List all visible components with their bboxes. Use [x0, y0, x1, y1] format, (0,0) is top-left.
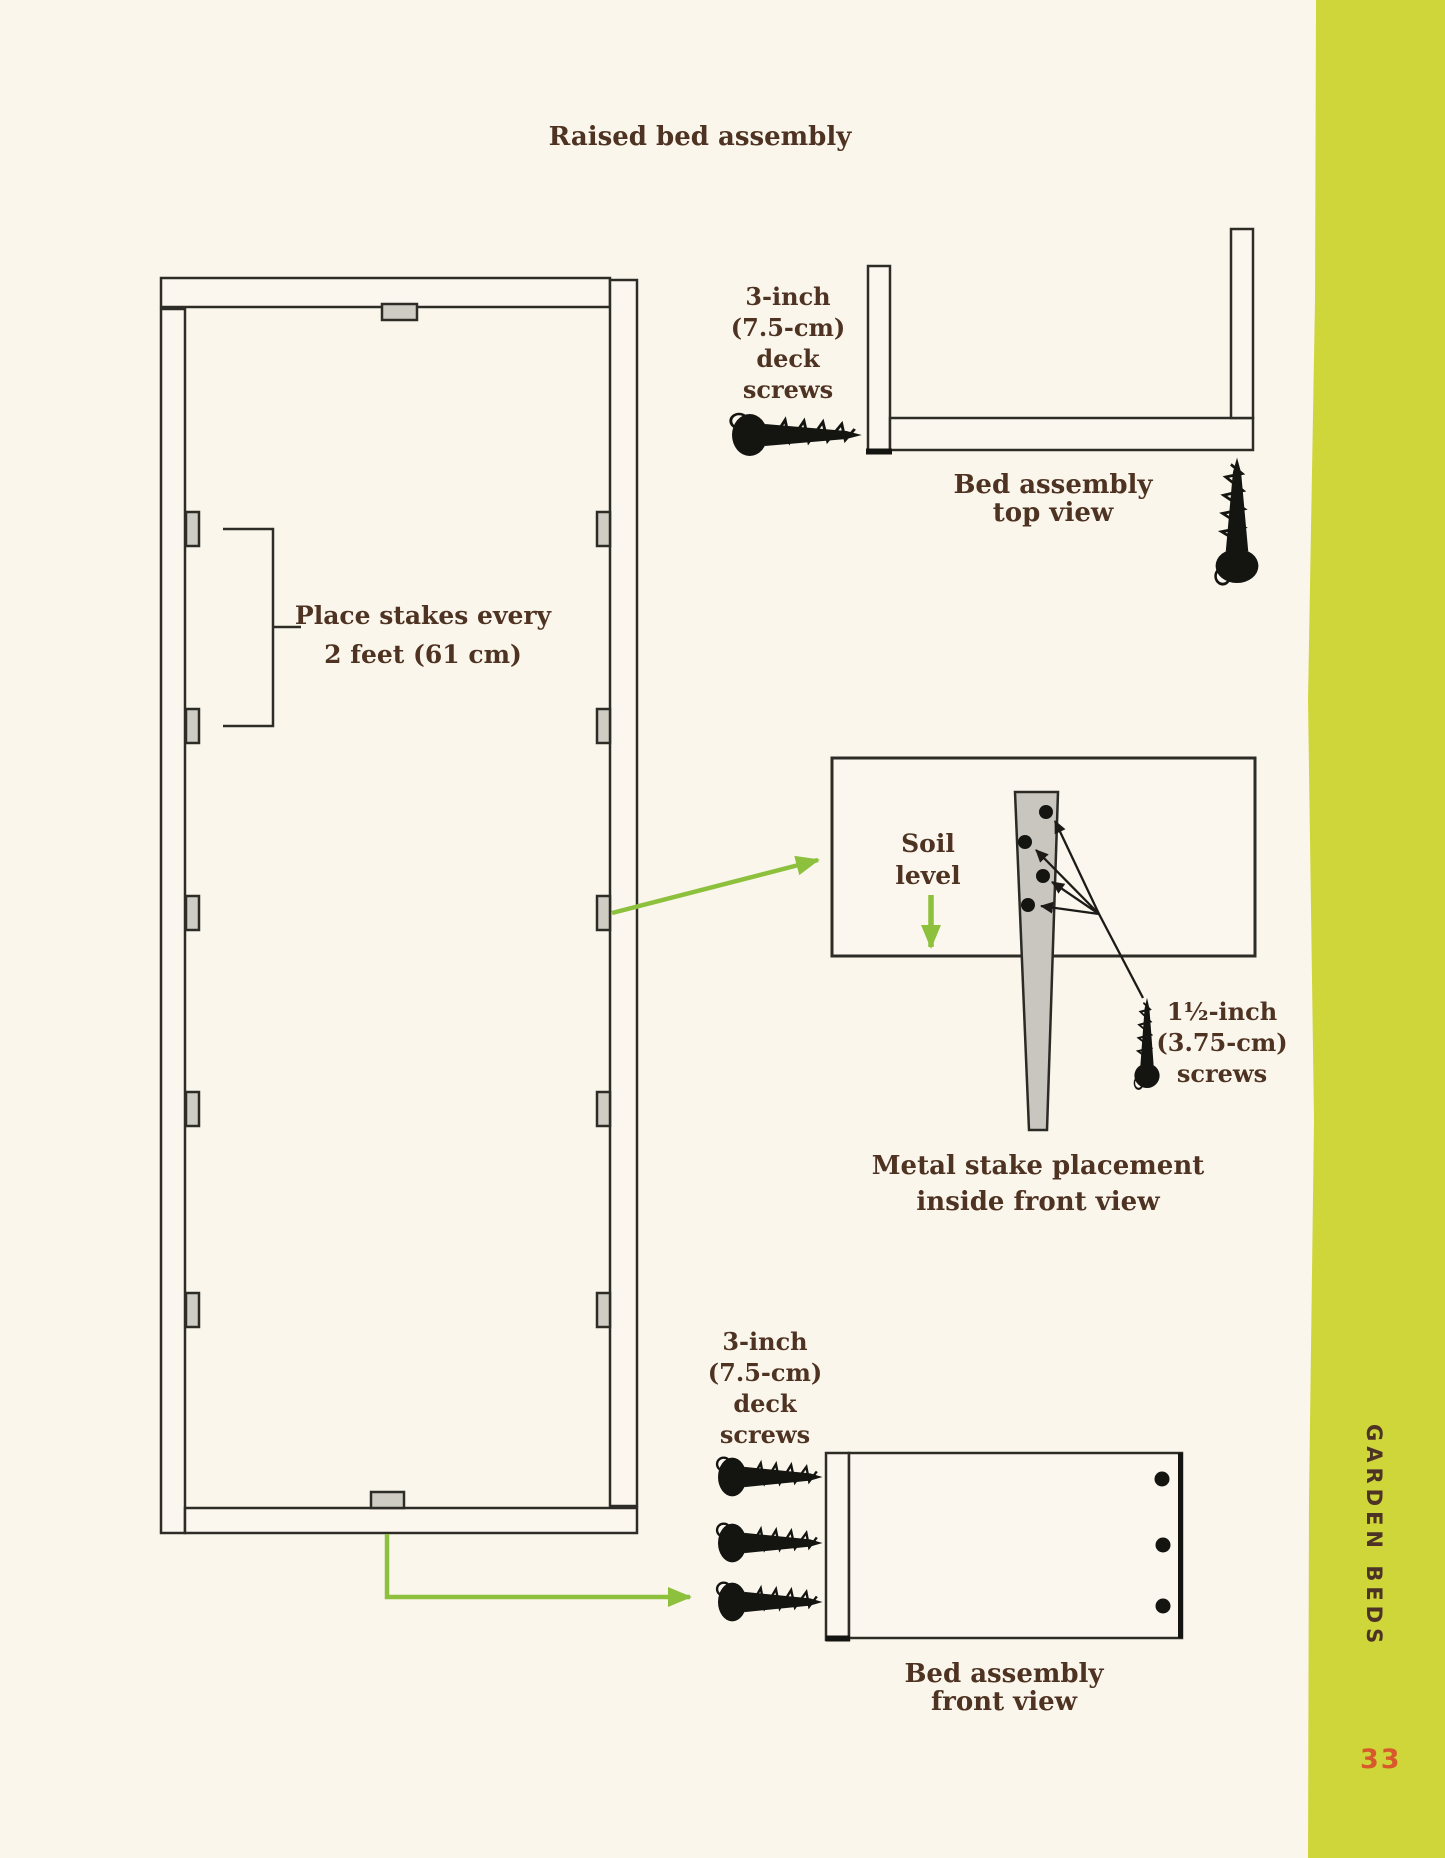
soil-level-label: Soil level — [895, 828, 960, 892]
deck-screw-icon — [731, 414, 862, 456]
arrow-to-front-view — [387, 1534, 690, 1597]
stake — [597, 1293, 610, 1327]
stake — [382, 304, 417, 320]
stake — [186, 1293, 199, 1327]
bed-right-board — [610, 280, 637, 1506]
diagram-canvas — [0, 0, 1445, 1858]
sidebar-section-label: GARDEN BEDS — [1362, 1424, 1386, 1648]
stake — [186, 896, 199, 930]
book-page: Raised bed assembly 3-inch (7.5-cm) deck… — [0, 0, 1445, 1858]
stake — [597, 709, 610, 743]
front-side-board — [849, 1453, 1182, 1638]
stake-spacing-note: Place stakes every 2 feet (61 cm) — [295, 596, 551, 674]
deck-screws-label-bottom: 3-inch (7.5-cm) deck screws — [708, 1326, 822, 1450]
screw-dot — [1021, 898, 1035, 912]
screw-dot — [1156, 1599, 1171, 1614]
screw-dot — [1156, 1538, 1171, 1553]
bed-top-board — [161, 278, 610, 307]
sidebar-band: GARDEN BEDS 33 — [1308, 0, 1445, 1858]
top-view-caption: Bed assembly top view — [953, 471, 1152, 527]
bed-plan-diagram — [161, 278, 637, 1533]
screw-dot — [1018, 835, 1032, 849]
stake — [597, 512, 610, 546]
screw-dot — [1155, 1472, 1170, 1487]
corner-left-board — [868, 266, 890, 452]
deck-screw-icon — [717, 1583, 822, 1622]
front-end-board — [826, 1453, 849, 1640]
figure-title: Raised bed assembly — [549, 122, 852, 152]
front-view-caption: Bed assembly front view — [904, 1660, 1103, 1716]
bed-bottom-board — [185, 1508, 637, 1533]
arrow-to-stake-detail — [612, 860, 818, 913]
stake-placement-caption: Metal stake placement inside front view — [872, 1148, 1204, 1220]
stake — [597, 896, 610, 930]
front-view-diagram — [826, 1453, 1182, 1640]
corner-right-board — [1231, 229, 1253, 418]
deck-screw-icon — [717, 1524, 822, 1563]
bed-left-board — [161, 309, 185, 1533]
screw-dot — [1039, 805, 1053, 819]
bed-plan-stakes — [186, 304, 610, 1508]
stake — [186, 512, 199, 546]
corner-top-view-diagram — [868, 229, 1253, 452]
stake — [597, 1092, 610, 1126]
screw-dot — [1036, 869, 1050, 883]
page-number: 33 — [1360, 1744, 1402, 1775]
stake — [371, 1492, 404, 1508]
corner-long-board — [890, 418, 1253, 450]
stake — [186, 1092, 199, 1126]
deck-screw-icon — [1216, 458, 1259, 585]
deck-screw-icon — [717, 1458, 822, 1497]
stake — [186, 709, 199, 743]
deck-screws-label-top: 3-inch (7.5-cm) deck screws — [731, 281, 845, 405]
small-screws-label: 1½-inch (3.75-cm) screws — [1156, 996, 1287, 1089]
stake-spacing-bracket — [223, 529, 301, 726]
